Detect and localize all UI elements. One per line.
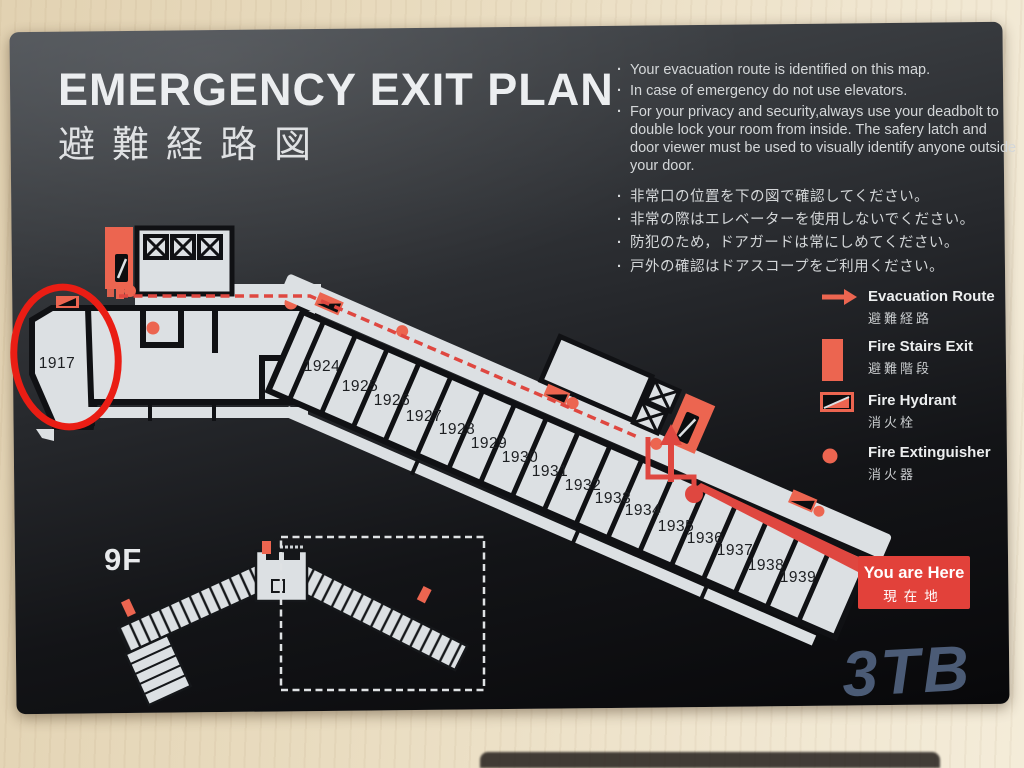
room-label-1934: 1934 [625,502,661,520]
photo-of-emergency-exit-sign: EMERGENCY EXIT PLAN 避難経路図 Your evacuatio… [0,0,1024,768]
legend-item-fire-hydrant: Fire Hydrant 消火栓 [820,392,956,431]
you-are-here-box: You are Here 現在地 [858,556,970,609]
legend-item-evacuation-route: Evacuation Route 避難経路 [820,288,995,327]
fire-extinguisher-icon [147,322,160,335]
room-label-1939: 1939 [780,569,816,587]
fire-stairs-exit-icon [820,338,868,382]
floor-label: 9F [104,542,142,578]
room-label-1931: 1931 [532,463,568,481]
inset-floor-overview [114,537,484,705]
room-label-1924: 1924 [304,358,340,376]
table-edge-shadow [480,752,940,768]
legend-item-fire-extinguisher: Fire Extinguisher 消火器 [820,444,991,483]
room-label-1917: 1917 [39,355,75,373]
room-label-1927: 1927 [406,408,442,426]
elevator-bank-icons [145,236,221,258]
plan-left-wing [32,227,321,441]
fire-hydrant-legend-icon [820,392,868,412]
fire-extinguisher-legend-icon [820,444,868,464]
fire-hydrant-icon [56,296,79,308]
watermark: 3TB [840,631,974,712]
legend-item-fire-stairs-exit: Fire Stairs Exit 避難階段 [820,338,973,382]
evacuation-route-arrow-icon [820,288,868,306]
